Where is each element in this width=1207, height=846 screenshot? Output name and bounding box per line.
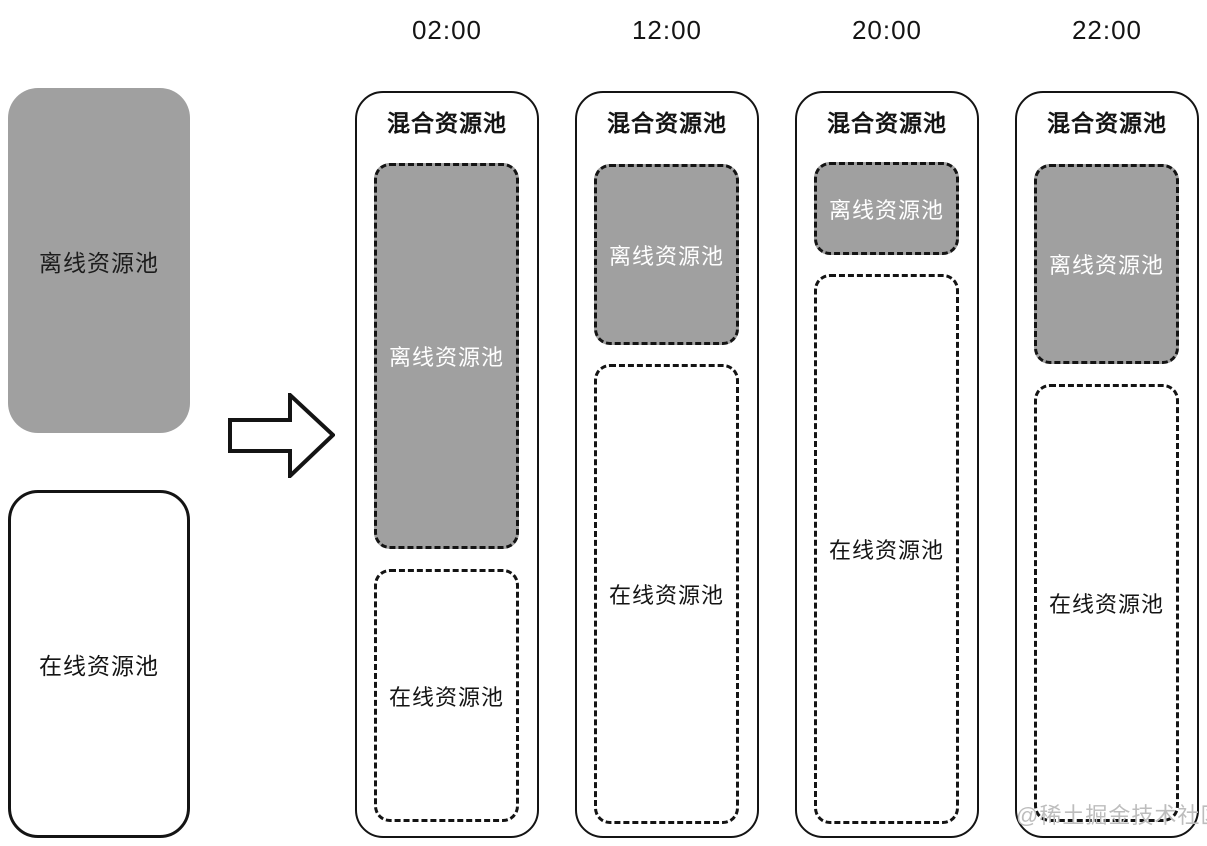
offline-pool-label: 离线资源池 — [1049, 248, 1164, 280]
offline-pool-label: 离线资源池 — [609, 239, 724, 271]
offline-pool-label: 离线资源池 — [829, 193, 944, 225]
online-pool-box: 在线资源池 — [594, 364, 739, 824]
online-pool-label: 在线资源池 — [829, 533, 944, 565]
mixed-pool-title: 混合资源池 — [357, 104, 537, 138]
mixed-pool-box: 混合资源池 离线资源池 在线资源池 — [1015, 91, 1199, 838]
mixed-pool-box: 混合资源池 离线资源池 在线资源池 — [355, 91, 539, 838]
offline-pool-box: 离线资源池 — [1034, 164, 1179, 364]
time-label: 20:00 — [795, 14, 979, 46]
merge-arrow-icon — [228, 393, 335, 478]
timeline-column: 20:00 混合资源池 离线资源池 在线资源池 — [795, 0, 979, 846]
watermark-text: @稀土掘金技术社区 — [1016, 798, 1207, 830]
online-pool-box: 在线资源池 — [1034, 384, 1179, 822]
mixed-pool-title: 混合资源池 — [577, 104, 757, 138]
offline-pool-source: 离线资源池 — [8, 88, 190, 433]
mixed-pool-title: 混合资源池 — [1017, 104, 1197, 138]
time-label: 02:00 — [355, 14, 539, 46]
offline-pool-box: 离线资源池 — [594, 164, 739, 345]
timeline-column: 22:00 混合资源池 离线资源池 在线资源池 — [1015, 0, 1199, 846]
mixed-pool-box: 混合资源池 离线资源池 在线资源池 — [575, 91, 759, 838]
resource-pool-diagram: 离线资源池 在线资源池 02:00 混合资源池 离线资源池 在线资源池 12:0… — [0, 0, 1207, 846]
mixed-pool-title: 混合资源池 — [797, 104, 977, 138]
online-pool-label: 在线资源池 — [389, 680, 504, 712]
online-pool-box: 在线资源池 — [374, 569, 519, 822]
online-pool-label: 在线资源池 — [609, 578, 724, 610]
online-pool-source-label: 在线资源池 — [39, 647, 159, 681]
time-label: 12:00 — [575, 14, 759, 46]
timeline-column: 12:00 混合资源池 离线资源池 在线资源池 — [575, 0, 759, 846]
offline-pool-box: 离线资源池 — [814, 162, 959, 255]
online-pool-box: 在线资源池 — [814, 274, 959, 824]
timeline-column: 02:00 混合资源池 离线资源池 在线资源池 — [355, 0, 539, 846]
online-pool-source: 在线资源池 — [8, 490, 190, 838]
offline-pool-label: 离线资源池 — [389, 340, 504, 372]
offline-pool-source-label: 离线资源池 — [39, 244, 159, 278]
online-pool-label: 在线资源池 — [1049, 587, 1164, 619]
mixed-pool-box: 混合资源池 离线资源池 在线资源池 — [795, 91, 979, 838]
time-label: 22:00 — [1015, 14, 1199, 46]
offline-pool-box: 离线资源池 — [374, 163, 519, 549]
